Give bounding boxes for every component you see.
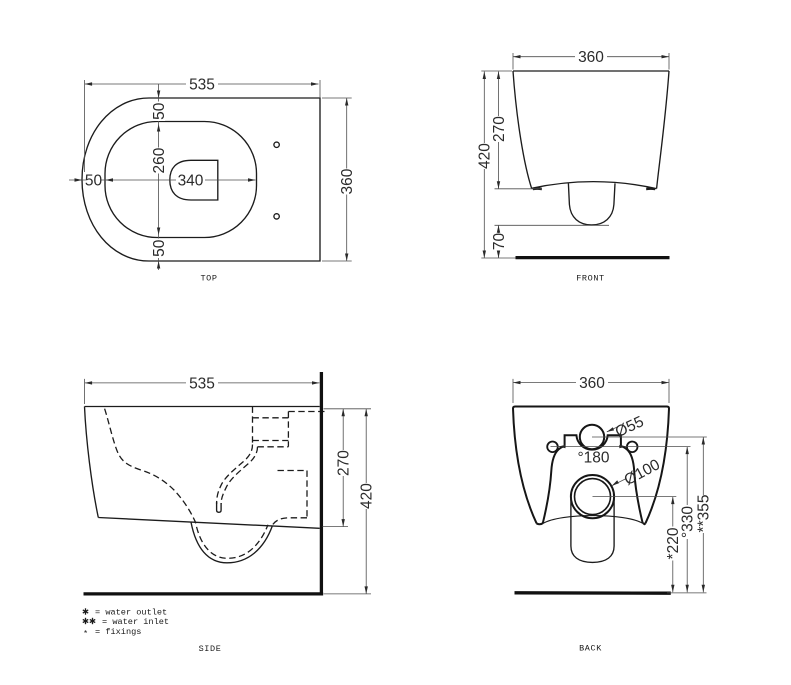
svg-text:50: 50: [151, 239, 168, 257]
svg-text:535: 535: [189, 375, 215, 392]
svg-text:= water inlet: = water inlet: [102, 617, 169, 627]
svg-text:535: 535: [189, 77, 215, 94]
svg-text:°330: °330: [680, 506, 697, 538]
svg-text:= water outlet: = water outlet: [95, 608, 167, 618]
svg-text:360: 360: [578, 49, 604, 66]
svg-text:50: 50: [85, 173, 103, 190]
svg-text:70: 70: [491, 233, 508, 251]
svg-text:360: 360: [339, 168, 356, 194]
svg-text:260: 260: [151, 147, 168, 173]
svg-text:270: 270: [491, 116, 508, 142]
svg-text:= fixings: = fixings: [95, 627, 141, 637]
svg-text:BACK: BACK: [579, 644, 602, 654]
svg-text:50: 50: [151, 102, 168, 120]
svg-text:270: 270: [336, 450, 353, 476]
svg-text:TOP: TOP: [200, 274, 217, 284]
svg-text:FRONT: FRONT: [576, 274, 605, 284]
svg-text:SIDE: SIDE: [199, 644, 222, 654]
svg-text:*: *: [83, 629, 88, 639]
svg-text:°180: °180: [577, 449, 609, 466]
svg-text:360: 360: [579, 375, 605, 392]
svg-text:340: 340: [178, 173, 204, 190]
svg-text:420: 420: [477, 143, 494, 169]
svg-text:420: 420: [359, 483, 376, 509]
svg-text:**355: **355: [696, 495, 713, 533]
